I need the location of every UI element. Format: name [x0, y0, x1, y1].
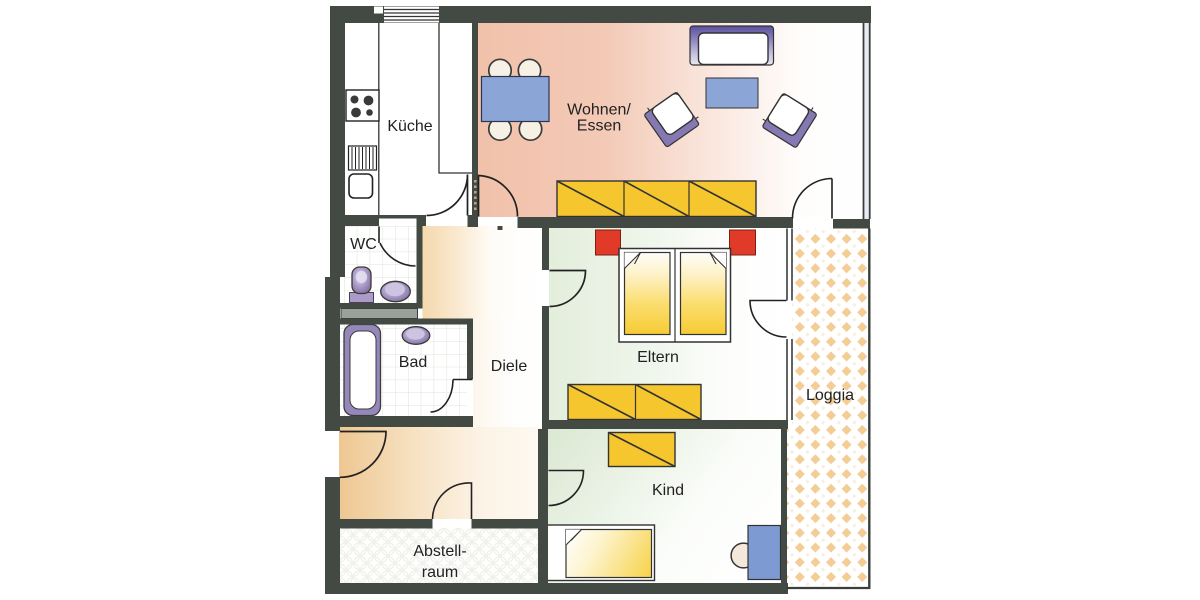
svg-text:Diele: Diele — [491, 358, 528, 375]
svg-text:Abstell-: Abstell- — [413, 543, 466, 560]
svg-text:Bad: Bad — [399, 354, 427, 371]
svg-text:Küche: Küche — [387, 118, 432, 135]
svg-text:Eltern: Eltern — [637, 349, 679, 366]
svg-text:WC: WC — [350, 236, 377, 253]
svg-text:Loggia: Loggia — [806, 387, 854, 404]
svg-text:raum: raum — [422, 564, 458, 581]
svg-text:Wohnen/: Wohnen/ — [567, 102, 631, 119]
svg-text:Essen: Essen — [577, 118, 621, 135]
svg-text:Kind: Kind — [652, 482, 684, 499]
